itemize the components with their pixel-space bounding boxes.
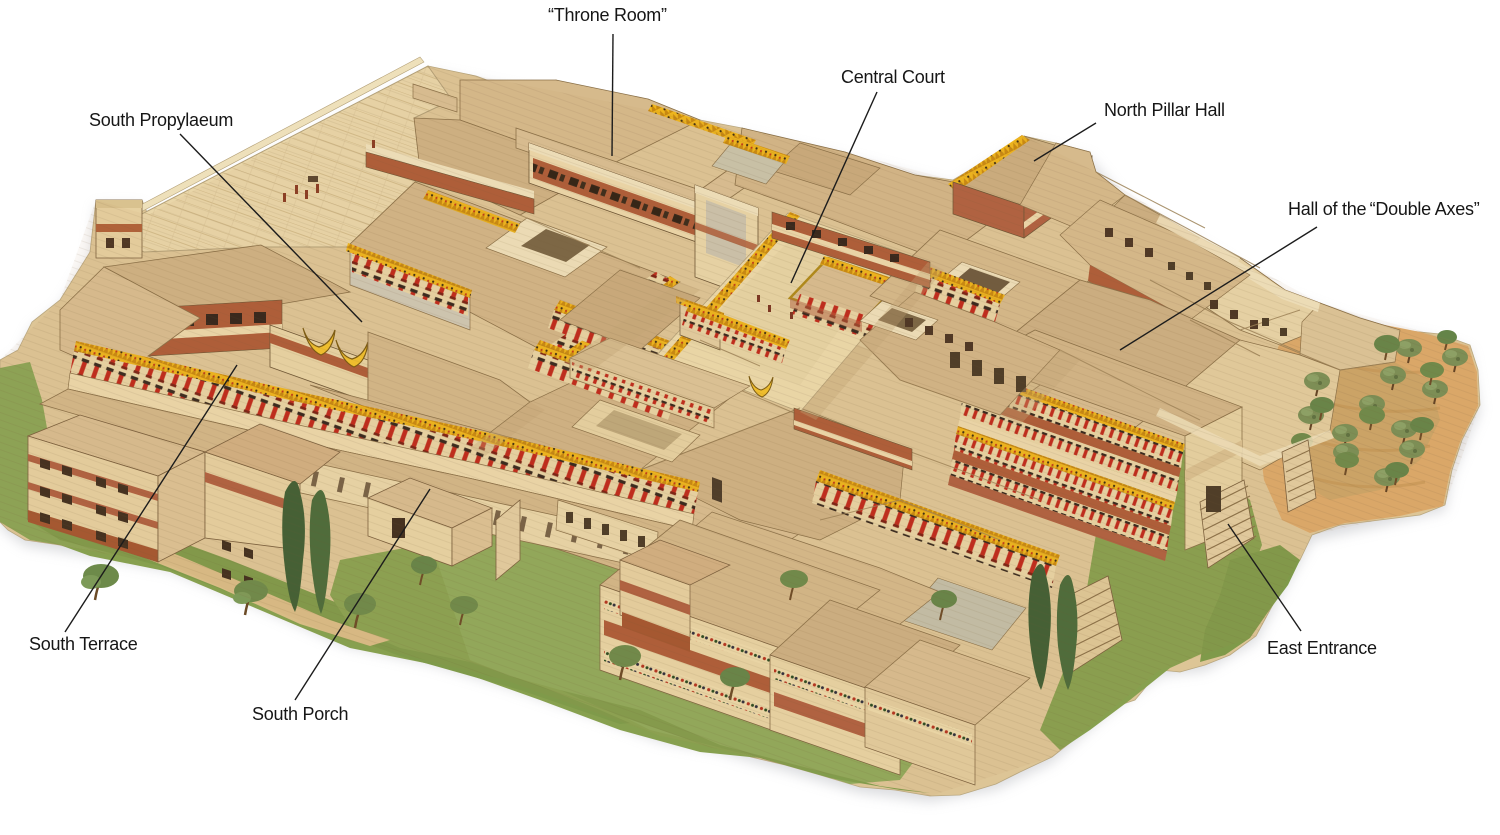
svg-text:South Porch: South Porch xyxy=(252,704,348,724)
svg-text:Hall of the “Double Axes”: Hall of the “Double Axes” xyxy=(1288,199,1480,219)
svg-text:South Terrace: South Terrace xyxy=(29,634,138,654)
svg-text:North Pillar Hall: North Pillar Hall xyxy=(1104,100,1225,120)
svg-text:East Entrance: East Entrance xyxy=(1267,638,1377,658)
svg-text:South Propylaeum: South Propylaeum xyxy=(89,110,233,130)
svg-text:“Throne Room”: “Throne Room” xyxy=(548,5,667,25)
svg-text:Central Court: Central Court xyxy=(841,67,945,87)
